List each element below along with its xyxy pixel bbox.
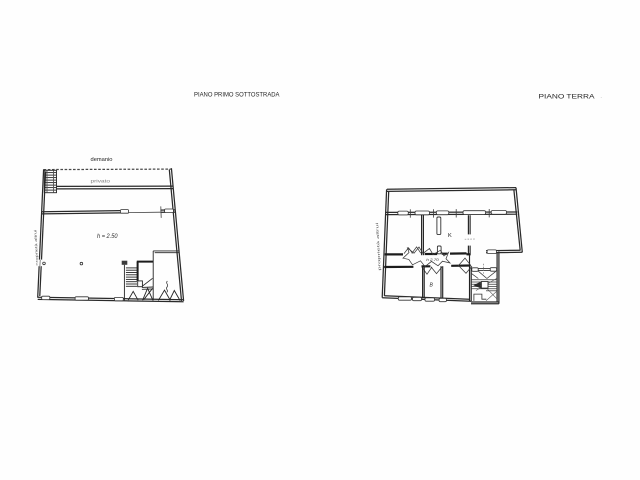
svg-text:PIANO PRIMO SOTTOSTRADA: PIANO PRIMO SOTTOSTRADA — [194, 91, 280, 98]
svg-text:demanio: demanio — [91, 157, 113, 163]
svg-text:privato: privato — [91, 179, 111, 184]
svg-text:PIANO TERRA: PIANO TERRA — [539, 94, 596, 101]
svg-text:.: . — [601, 94, 602, 99]
svg-text:h = 2.50: h = 2.50 — [97, 234, 118, 240]
svg-text:h 2.70: h 2.70 — [426, 258, 440, 262]
svg-text:K: K — [448, 233, 452, 239]
